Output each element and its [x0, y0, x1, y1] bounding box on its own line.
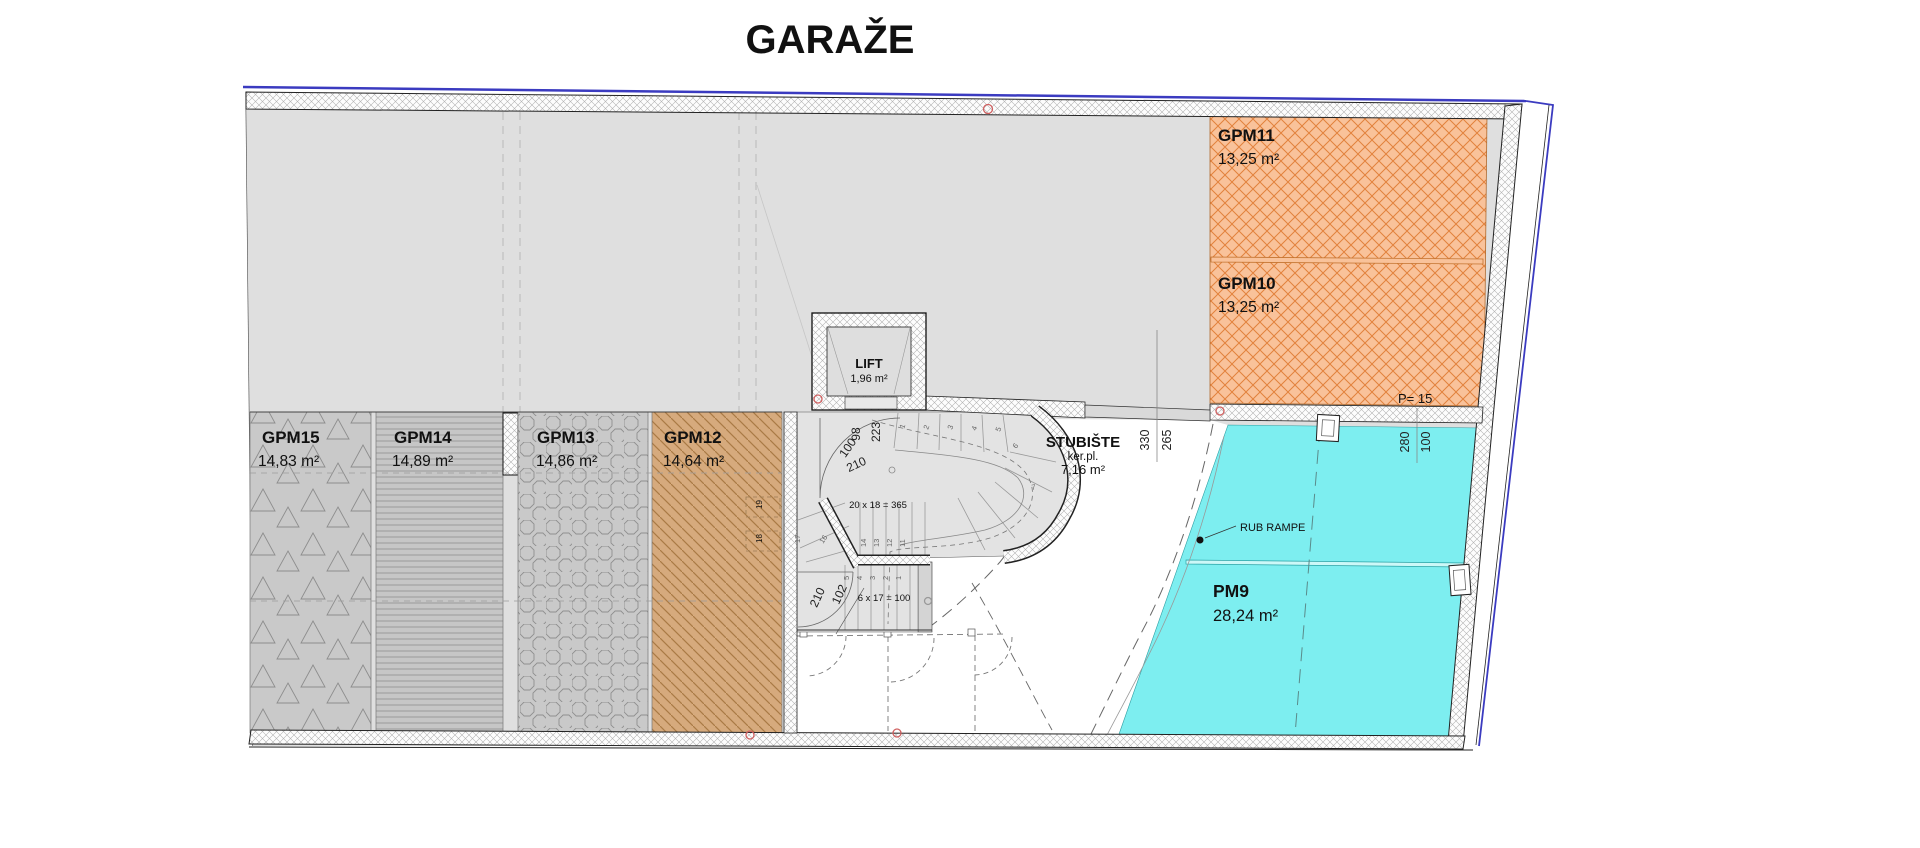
spot-area-gpm15: 14,83 m² [258, 453, 319, 470]
step-number: 4 [855, 576, 864, 580]
spot-label-gpm13: GPM13 [537, 428, 595, 447]
wall-niche-right [1449, 564, 1471, 595]
spot-label-gpm11: GPM11 [1218, 126, 1275, 145]
step-number-hidden: 19 [755, 500, 764, 509]
step-number: 11 [898, 539, 907, 547]
spot-area-gpm11: 13,25 m² [1218, 151, 1279, 168]
spot-area-gpm13: 14,86 m² [536, 453, 597, 470]
spot-label-gpm10: GPM10 [1218, 274, 1276, 293]
spot-label-gpm14: GPM14 [394, 428, 452, 447]
wall-niche-top [1316, 414, 1339, 441]
spot-label-gpm12: GPM12 [664, 428, 722, 447]
spot-area-pm9: 28,24 m² [1213, 607, 1279, 625]
lift-door [845, 397, 897, 409]
wall-under-orange [1210, 404, 1483, 423]
rub-rampe-dot [1197, 537, 1204, 544]
pillar [918, 562, 932, 632]
column [503, 413, 518, 475]
lift-area: 1,96 m² [850, 373, 888, 385]
stairwell-area: 7,16 m² [1061, 462, 1106, 477]
step-number: 17 [793, 535, 802, 543]
lift-label: LIFT [855, 356, 882, 371]
annotation-p15: P= 15 [1398, 391, 1432, 406]
step-number: 13 [872, 539, 881, 547]
stairwell-label: STUBIŠTE [1046, 433, 1120, 451]
floor-plan: GARAŽE GPM15 14,83 m² GPM14 14,89 m² GPM… [0, 0, 1920, 848]
dim-280: 280 [1398, 432, 1412, 453]
stair-formula-main: 20 x 18 = 365 [849, 500, 907, 511]
step-number: 5 [842, 576, 851, 580]
spot-label-pm9: PM9 [1213, 581, 1249, 601]
annotation-rub-rampe: RUB RAMPE [1240, 522, 1305, 534]
step-number: 12 [885, 539, 894, 547]
page-title: GARAŽE [746, 16, 915, 62]
dim-223: 223 [869, 422, 883, 442]
wall-stair-west [784, 412, 797, 733]
stair-formula-lower: 6 x 17 = 100 [858, 593, 911, 604]
spot-area-gpm10: 13,25 m² [1218, 299, 1279, 316]
dim-265: 265 [1160, 430, 1174, 451]
dim-330: 330 [1138, 430, 1152, 451]
spot-label-gpm15: GPM15 [262, 428, 320, 447]
step-number: 1 [894, 576, 903, 580]
spot-area-gpm12: 14,64 m² [663, 453, 724, 470]
step-number: 2 [881, 576, 890, 580]
step-number-hidden: 18 [755, 534, 764, 543]
dim-100: 100 [1419, 432, 1433, 453]
step-number: 3 [868, 576, 877, 580]
spot-area-gpm14: 14,89 m² [392, 453, 453, 470]
step-number: 14 [859, 539, 868, 547]
